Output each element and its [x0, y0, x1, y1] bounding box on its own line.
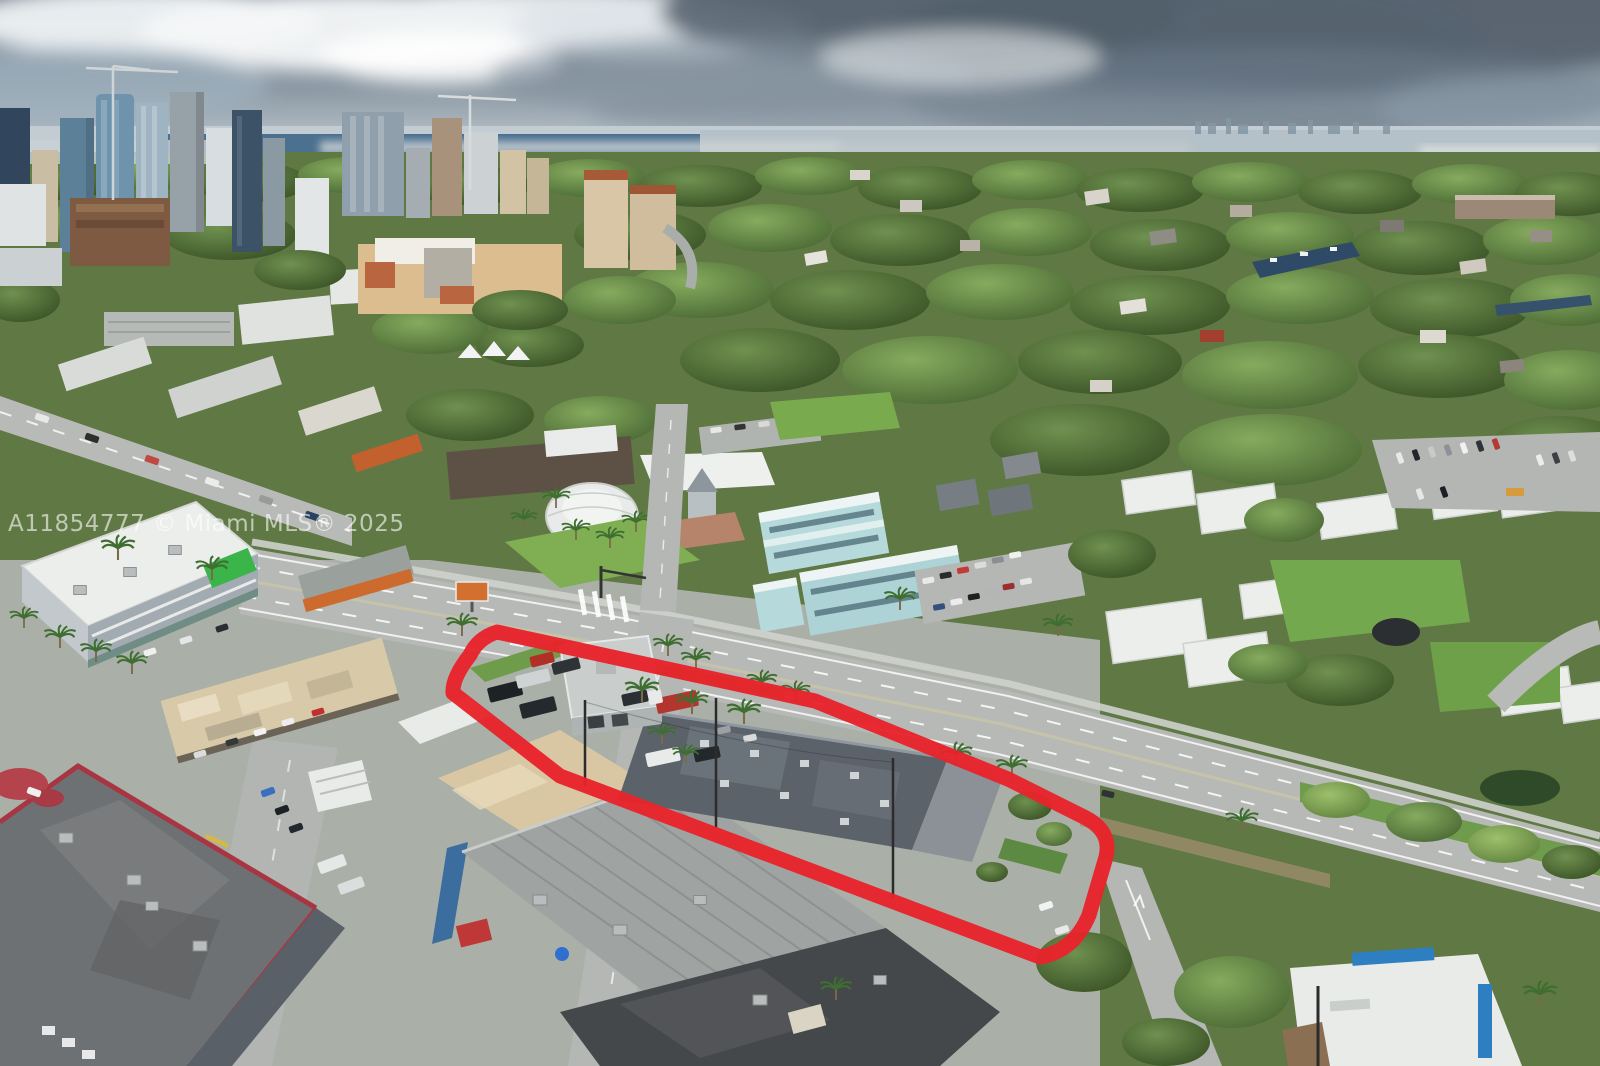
mls-watermark: A11854777 © Miami MLS® 2025 [8, 511, 404, 537]
billboard [456, 582, 488, 601]
orange-truck [1506, 488, 1524, 496]
beige-condo-towers [584, 170, 676, 270]
blue-tarp [555, 947, 569, 961]
aerial-photo: A11854777 © Miami MLS® 2025 [0, 0, 1600, 1066]
condo-parking-lot [1372, 432, 1600, 512]
construction-site [70, 198, 170, 266]
aerial-photo-canvas: A11854777 © Miami MLS® 2025 [0, 0, 1600, 1066]
parking-garage [104, 312, 234, 346]
